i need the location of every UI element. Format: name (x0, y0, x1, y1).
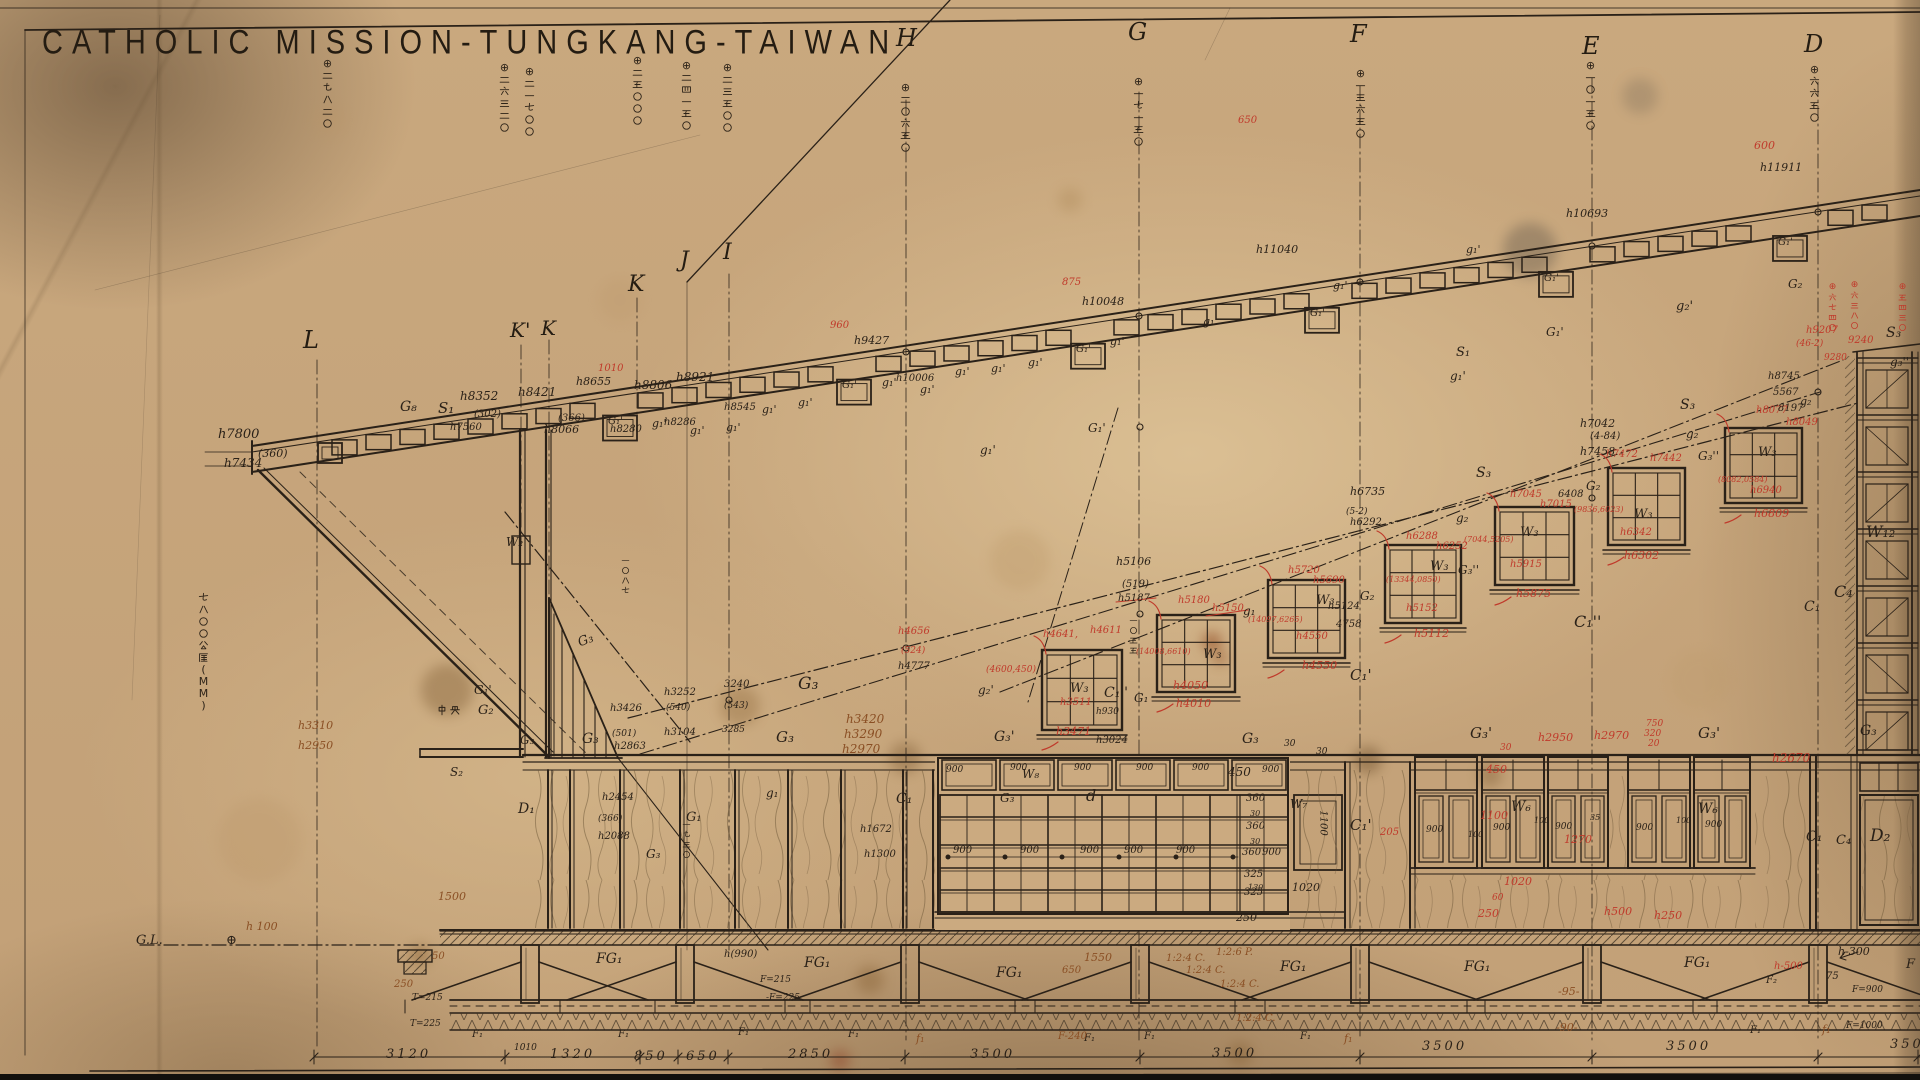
annotation: F₂ (1766, 976, 1777, 986)
annotation: W₃ (1634, 508, 1653, 521)
annotation: 650 (686, 1050, 720, 1063)
annotation: h3471 (1056, 726, 1091, 737)
annotation: g₁' (1466, 244, 1480, 255)
blueprint-sheet: CATHOLIC MISSION-TUNGKANG-TAIWAN HGFEDKJ… (0, 0, 1920, 1080)
annotation: F₁ (1750, 1026, 1761, 1036)
annotation: G.L. (136, 934, 163, 947)
annotation: G₁' (1076, 345, 1091, 355)
annotation: G₃' (1698, 726, 1720, 741)
annotation: 250 (394, 980, 413, 990)
annotation: h1300 (864, 850, 896, 860)
annotation: 1100 (1480, 810, 1508, 821)
annotation: h3104 (664, 728, 696, 738)
annotation: -90- (1556, 1022, 1577, 1033)
annotation: h6735 (1350, 486, 1385, 497)
grid-letter: E (1582, 34, 1600, 58)
annotation: 750 (1646, 720, 1663, 729)
elevation-column: ⊕ (322, 58, 333, 129)
annotation: h3290 (844, 728, 882, 740)
annotation: h5187 (1118, 594, 1150, 604)
annotation: 250 (1478, 908, 1499, 919)
annotation: F=900 (1852, 986, 1883, 995)
annotation: T=225 (410, 1020, 441, 1029)
annotation: h8921 (676, 371, 714, 383)
elevation-column: ⊕ (900, 82, 911, 153)
annotation: (14097,6265) (1248, 616, 1303, 624)
annotation: 900 (1074, 764, 1091, 773)
annotation: h4641, (1043, 630, 1078, 640)
annotation: D₂ (1870, 828, 1890, 845)
annotation: G₃ (520, 734, 534, 746)
annotation: 75 (1826, 972, 1839, 982)
annotation: h2970 (842, 743, 880, 755)
annotation: 600 (1754, 140, 1775, 151)
annotation: h500 (1604, 906, 1632, 917)
annotation: F₁ (472, 1030, 483, 1040)
annotation: 325 (1244, 888, 1263, 898)
annotation: h4550 (1296, 632, 1328, 642)
annotation: 60 (1492, 894, 1503, 903)
annotation: h5690 (1313, 576, 1345, 586)
annotation: G₁' (1546, 326, 1564, 338)
annotation: G₈ (400, 400, 417, 414)
elevation-column (436, 704, 461, 716)
annotation: 1:2:4 C. (1236, 1014, 1275, 1024)
annotation: W₆ (1698, 802, 1718, 816)
annotation: 1100 (1318, 810, 1328, 835)
annotation: (543) (724, 702, 748, 711)
annotation: C₁' (1350, 818, 1372, 833)
annotation: (302) (474, 410, 501, 420)
annotation: S₁ (438, 401, 454, 416)
annotation: h8745 (1768, 372, 1800, 382)
annotation: (524) (901, 647, 925, 656)
elevation-column: ⊕ (499, 62, 510, 133)
annotation: h2970 (1594, 730, 1629, 741)
annotation: 1010 (514, 1044, 537, 1053)
annotation: h7800 (218, 428, 259, 441)
annotation: S₂ (450, 766, 463, 778)
annotation: G₃ (798, 676, 818, 693)
annotation: 30 (1316, 748, 1327, 757)
annotation: g₁' (652, 418, 666, 429)
annotation: W₃ (1520, 526, 1539, 539)
annotation: G₂ (1586, 480, 1600, 492)
annotation: g₂' (978, 684, 994, 696)
annotation: (4-84) (1590, 432, 1620, 442)
annotation: 900 (946, 766, 963, 775)
annotation: h11040 (1256, 244, 1298, 255)
annotation: 9240 (1848, 336, 1873, 346)
elevation-column: ⊕ (1809, 64, 1820, 123)
annotation: h4050 (1173, 680, 1208, 691)
annotation: 450 (1228, 766, 1251, 778)
annotation: G₂ (478, 704, 494, 717)
annotation: d (1086, 788, 1096, 804)
annotation: G₃' (994, 730, 1015, 744)
annotation: h6940 (1750, 486, 1782, 496)
annotation: h 100 (246, 921, 278, 932)
elevation-column (682, 820, 691, 859)
annotation: S₁ (1456, 346, 1470, 359)
annotation: W₃ (1430, 560, 1449, 573)
annotation: h11911 (1760, 162, 1802, 173)
annotation: 100 (1468, 831, 1483, 839)
grid-letter: K (541, 318, 556, 338)
annotation: 900 (1020, 846, 1039, 856)
annotation: W₂ (506, 536, 523, 548)
annotation: 900 (1555, 823, 1572, 832)
elevation-column: (MM) (198, 592, 209, 711)
annotation: 900 (1124, 846, 1143, 856)
annotation: h8352 (460, 390, 498, 402)
annotation: g₂ (1686, 428, 1699, 440)
elevation-column: ⊕ (722, 62, 733, 133)
annotation: h4656 (898, 627, 930, 637)
annotation: F=1000 (1846, 1022, 1883, 1031)
grid-letter: I (723, 242, 732, 264)
annotation: (46-2) (1796, 340, 1823, 349)
annotation: F₁ (738, 1028, 749, 1038)
annotation: 35 (1590, 814, 1600, 822)
annotation: h5106 (1116, 556, 1151, 567)
annotation: 320 (1644, 730, 1661, 739)
annotation: h2088 (598, 832, 630, 842)
annotation: h4777 (898, 662, 930, 672)
elevation-column: ⊕ (681, 60, 692, 131)
annotation: 100 (1676, 817, 1691, 825)
annotation: 900 (1636, 824, 1653, 833)
annotation: g₁' (762, 404, 776, 415)
annotation: 1:2:4 C. (1166, 954, 1205, 964)
annotation: G₃ (1242, 732, 1259, 746)
annotation: FG₁ (1280, 960, 1307, 974)
annotation: (540) (666, 704, 690, 713)
annotation: 650 (1238, 116, 1257, 126)
annotation: h8545 (724, 403, 756, 413)
annotation: h5124 (1328, 602, 1360, 612)
annotation: W₃ (1070, 682, 1089, 695)
annotation: (9836,6023) (1574, 506, 1624, 514)
annotation: 1:2:4 C. (1220, 980, 1259, 990)
annotation: 325 (1244, 870, 1263, 880)
annotation: (13344,0850) (1386, 576, 1441, 584)
annotation: 650 (1062, 966, 1081, 976)
annotation: T=215 (412, 994, 443, 1003)
annotation: 900 (1136, 764, 1153, 773)
annotation: F (1906, 958, 1915, 971)
annotation: h7560 (450, 423, 482, 433)
annotation: C₁'' (1574, 614, 1601, 630)
elevation-column (621, 556, 630, 595)
annotation: h4550 (1302, 660, 1337, 671)
annotation: g₃'' (1890, 356, 1909, 368)
annotation: h-300 (1838, 946, 1870, 957)
annotation: W₁₂ (1866, 524, 1895, 540)
annotation: (501) (612, 730, 636, 739)
elevation-column (1129, 616, 1138, 655)
annotation: 900 (1426, 826, 1443, 835)
annotation: F=215 (760, 976, 791, 985)
annotation: -95- (1558, 986, 1579, 997)
annotation: 360 (1246, 822, 1265, 832)
annotation: G₁' (1778, 238, 1793, 248)
annotation: FG₁ (804, 956, 831, 970)
annotation: G₁' (842, 381, 857, 391)
annotation: g₁' (798, 397, 812, 408)
annotation: h8049 (1786, 418, 1818, 428)
annotation: G₃ (1000, 792, 1014, 804)
annotation: h6809 (1754, 508, 1789, 519)
annotation: 450 (1486, 764, 1507, 775)
grid-letter: K (628, 274, 644, 296)
annotation: g₁' (1203, 316, 1217, 327)
elevation-column: ⊕ (1850, 281, 1859, 330)
annotation: 960 (830, 321, 849, 331)
annotation: g₁' (690, 425, 704, 436)
annotation: G₁' (474, 684, 492, 696)
annotation: 3500 (970, 1048, 1015, 1061)
annotation: h7045 (1510, 490, 1542, 500)
grid-letter: L (303, 328, 319, 352)
annotation: 850 (634, 1050, 668, 1063)
annotation: F₁ (848, 1030, 859, 1040)
annotation: h10693 (1566, 208, 1608, 219)
annotation: FG₁ (1684, 956, 1711, 970)
annotation: W₃ (1203, 648, 1222, 661)
annotation: FG₁ (596, 952, 623, 966)
annotation: S₃ (1680, 398, 1695, 412)
annotation: G₃ (1860, 724, 1877, 738)
annotation: h8066 (544, 424, 579, 435)
annotation: S₃ (1476, 466, 1491, 480)
annotation: C₁ (896, 792, 912, 806)
elevation-column: ⊕ (1585, 60, 1596, 131)
annotation: h7434 (224, 457, 262, 469)
annotation: f₁ (916, 1033, 924, 1044)
annotation: 3500 (1666, 1040, 1711, 1053)
annotation: g₁' (955, 366, 969, 377)
annotation: W₃ (1758, 446, 1777, 459)
annotation: G₁ (1134, 692, 1148, 704)
annotation: g₁' (1110, 336, 1124, 347)
annotation: 3240 (724, 680, 749, 690)
annotation: g₁' (920, 384, 934, 395)
annotation: f₁ (1822, 1024, 1830, 1035)
annotation: G₁' (1310, 309, 1325, 319)
grid-letter: H (896, 26, 917, 50)
annotation: 900 (1192, 764, 1209, 773)
annotation: G₃'' (1458, 564, 1479, 576)
annotation: 5567 (1773, 388, 1798, 398)
annotation: h5152 (1406, 604, 1438, 614)
annotation: C₄ (1834, 584, 1853, 600)
annotation: h930 (1096, 708, 1119, 717)
annotation: 30 (1250, 810, 1260, 818)
annotation: G₁' (1544, 274, 1559, 284)
annotation: 3285 (722, 726, 745, 735)
annotation: 900 (953, 846, 972, 856)
annotation: 3120 (386, 1048, 431, 1061)
annotation: g₁' (980, 444, 996, 456)
annotation: C₄ (1836, 834, 1851, 847)
annotation: g₁ (766, 787, 779, 799)
annotation: h7458 (1580, 446, 1615, 457)
annotation: G₂ (1360, 590, 1374, 602)
annotation: 30 (1284, 740, 1295, 749)
annotation: 50 (432, 952, 445, 962)
annotation: g₂ (1456, 512, 1469, 524)
annotation: h6288 (1406, 532, 1438, 542)
annotation: 20 (1648, 740, 1659, 749)
annotation: g₂ (1800, 396, 1811, 407)
annotation: h5915 (1510, 560, 1542, 570)
annotation: h5150 (1212, 604, 1244, 614)
annotation: 900 (1176, 846, 1195, 856)
annotation: h7042 (1580, 418, 1615, 429)
elevation-column: ⊕ (1898, 283, 1907, 332)
annotation: F-240 (1058, 1032, 1087, 1042)
annotation: G₂ (1788, 278, 1802, 290)
annotation: h3310 (298, 720, 333, 731)
annotation: 1010 (598, 364, 623, 374)
annotation: 3500 (1422, 1040, 1467, 1053)
annotation: h2454 (602, 793, 634, 803)
annotation: (519) (1122, 580, 1149, 590)
grid-letter: J (680, 250, 689, 272)
annotation: h3024 (1096, 736, 1128, 746)
annotation: h4010 (1176, 698, 1211, 709)
annotation: h1672 (860, 825, 892, 835)
annotation: h7015 (1540, 500, 1572, 510)
annotation: 875 (1062, 278, 1081, 288)
annotation: 6408 (1558, 490, 1583, 500)
annotation: 900 (1262, 848, 1281, 858)
annotation: h6342 (1620, 528, 1652, 538)
annotation: h8655 (576, 376, 611, 387)
annotation: F₁ (618, 1030, 629, 1040)
annotation: W₆ (1511, 800, 1531, 814)
annotation: h3511 (1060, 698, 1092, 708)
annotation: 900 (1705, 821, 1722, 830)
annotation: G₃'' (1698, 450, 1719, 462)
annotation: (7044,5205) (1464, 536, 1514, 544)
annotation: G₃ (576, 632, 595, 650)
annotation: h8806 (634, 379, 672, 391)
annotation: 2850 (788, 1048, 833, 1061)
annotation: 205 (1380, 828, 1399, 838)
annotation: W₇ (1290, 798, 1307, 810)
annotation: h4611 (1090, 626, 1122, 636)
annotation: 1550 (1084, 952, 1112, 963)
annotation: C₁ (1804, 600, 1820, 614)
annotation: h2670 (1772, 752, 1810, 764)
annotation: g₁ (1243, 605, 1256, 617)
annotation: h10048 (1082, 296, 1124, 307)
annotation: g₁' (726, 422, 740, 433)
annotation: 350 (1890, 1038, 1920, 1051)
annotation: 9280 (1824, 354, 1847, 363)
annotation: 250 (1236, 912, 1257, 923)
annotation: h2950 (1538, 732, 1573, 743)
annotation: 30 (1250, 838, 1260, 846)
annotation: D₁ (518, 802, 535, 816)
annotation: C₁'' (1104, 686, 1128, 700)
annotation: 1:2:6 P. (1216, 948, 1253, 958)
annotation: 900 (1080, 846, 1099, 856)
annotation: 1500 (438, 891, 466, 902)
annotation: h7442 (1650, 454, 1682, 464)
annotation: g₁' (1450, 370, 1466, 382)
annotation: -F=225 (766, 994, 800, 1003)
annotation: (360) (258, 448, 288, 459)
annotation: g₁' (882, 377, 896, 388)
annotation: h250 (1654, 910, 1682, 921)
grid-letter: D (1804, 32, 1823, 56)
annotation: FG₁ (1464, 960, 1491, 974)
annotation: 360 (1246, 794, 1265, 804)
annotation: G₃ (646, 848, 660, 860)
annotation: G₁' (1088, 422, 1106, 434)
annotation: FG₁ (996, 966, 1023, 980)
annotation: h-500 (1774, 962, 1803, 972)
annotation-layer: HGFEDKJILK'Kh7800(360)h7434G₈S₁h8352(302… (0, 0, 1920, 1080)
annotation: 1320 (550, 1048, 595, 1061)
annotation: g₁' (1333, 280, 1347, 291)
annotation: h6302 (1624, 550, 1659, 561)
annotation: 1020 (1292, 882, 1320, 893)
annotation: (14008,6610) (1136, 648, 1191, 656)
annotation: G₃ (582, 732, 599, 746)
annotation: h2950 (298, 740, 333, 751)
elevation-column: ⊕ (1828, 283, 1837, 332)
grid-letter: K' (510, 320, 530, 340)
annotation: F₁ (1144, 1032, 1155, 1042)
annotation: h3420 (846, 713, 884, 725)
annotation: f₁ (1344, 1033, 1352, 1044)
annotation: g₂' (1676, 300, 1693, 313)
annotation: h3252 (664, 688, 696, 698)
annotation: 360 (1242, 848, 1261, 858)
annotation: h5112 (1414, 628, 1449, 639)
annotation: h9427 (854, 335, 889, 346)
annotation: (5-2) (1346, 508, 1368, 517)
annotation: 900 (1010, 764, 1027, 773)
grid-letter: F (1350, 22, 1367, 46)
annotation: g₁' (1028, 357, 1042, 368)
grid-letter: G (1128, 20, 1147, 44)
annotation: 900 (1493, 824, 1510, 833)
annotation: (8082,0584) (1718, 476, 1768, 484)
annotation: F₁ (1300, 1032, 1311, 1042)
annotation: 1020 (1504, 876, 1532, 887)
annotation: h5875 (1516, 588, 1551, 599)
annotation: 30 (1500, 744, 1511, 753)
annotation: (366) (598, 815, 622, 824)
annotation: h3426 (610, 704, 642, 714)
annotation: 100 (1534, 817, 1549, 825)
annotation: (4600,450) (986, 666, 1036, 675)
annotation: h5180 (1178, 596, 1210, 606)
annotation: h(990) (724, 950, 757, 960)
annotation: h2863 (614, 742, 646, 752)
annotation: G₃' (1470, 726, 1492, 741)
annotation: 3500 (1212, 1047, 1257, 1060)
annotation: C₁ (1806, 830, 1822, 844)
annotation: C₁' (1350, 668, 1372, 683)
elevation-column: ⊕ (524, 66, 535, 137)
elevation-column: ⊕ (632, 55, 643, 126)
